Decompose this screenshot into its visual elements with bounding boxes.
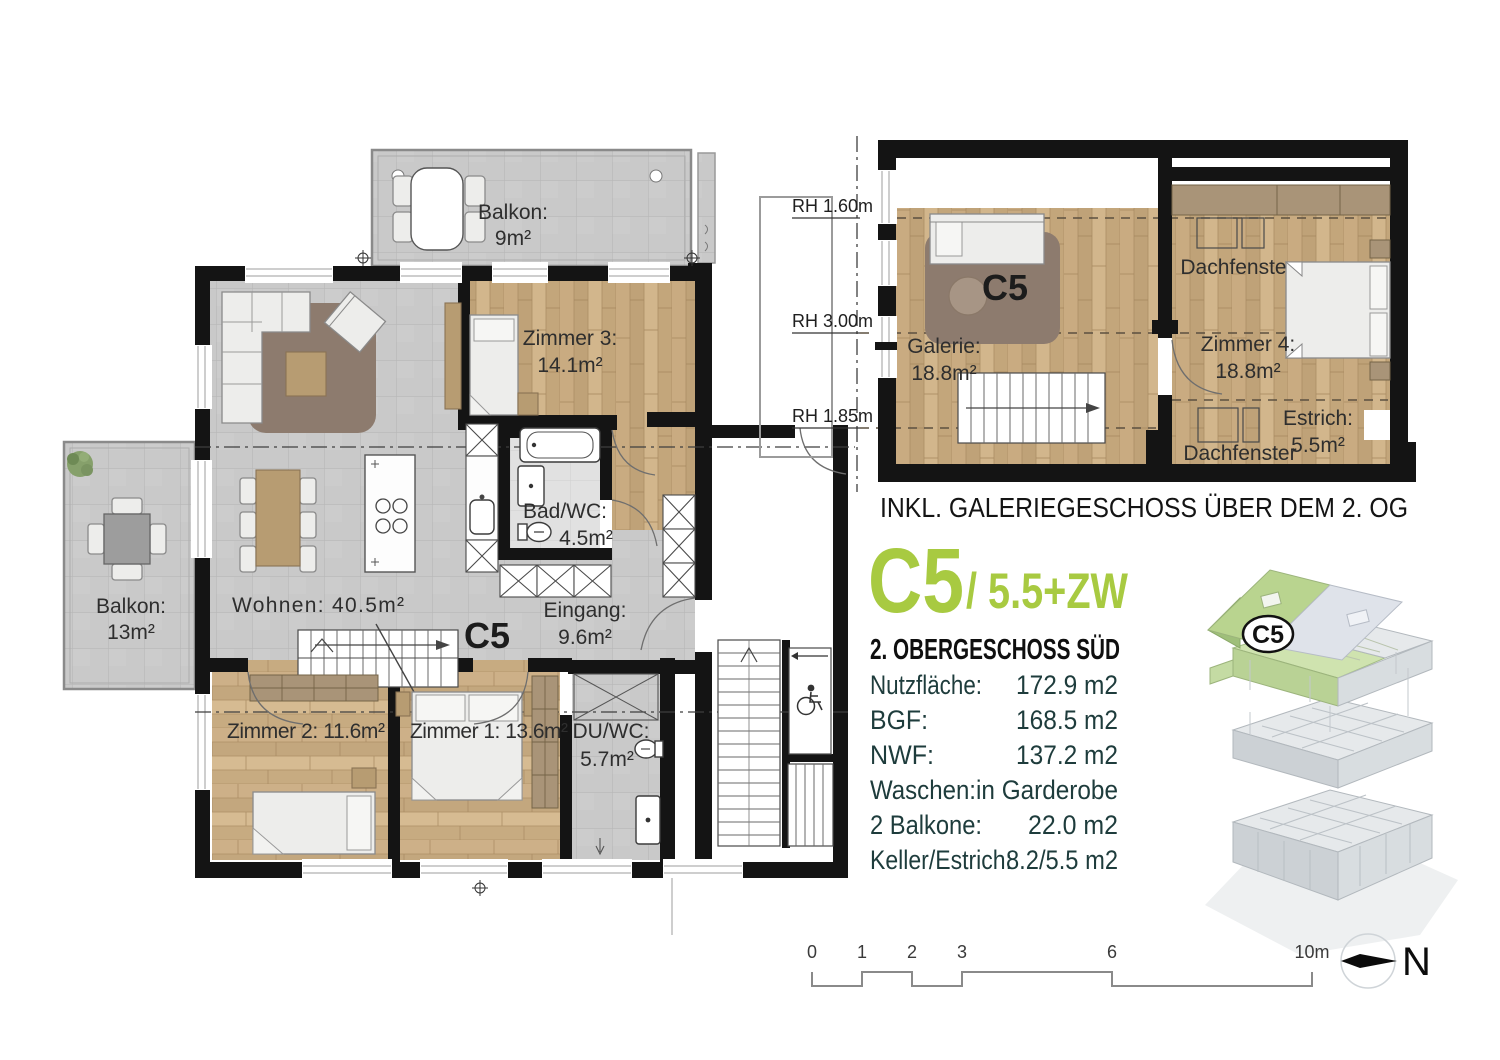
- window: [191, 694, 212, 790]
- label-balkon-left: Balkon:: [96, 595, 166, 618]
- label-duwc: DU/WC:: [573, 720, 650, 743]
- window: [875, 316, 897, 378]
- label-eingang: Eingang:: [544, 599, 627, 622]
- info-row-label: Waschen:: [870, 775, 976, 805]
- nightstand: [396, 692, 410, 716]
- scale-tick-2: 2: [907, 942, 917, 962]
- axon-badge-text: C5: [1252, 621, 1284, 649]
- info-row-value: 22.0 m2: [1028, 810, 1118, 840]
- label-bad-area: 4.5m²: [559, 527, 613, 550]
- washbasin: [636, 796, 660, 844]
- scale-tick-3: 3: [957, 942, 967, 962]
- dining-set: [240, 470, 316, 572]
- nightstand: [518, 393, 538, 415]
- building-axon: C5: [1205, 570, 1458, 955]
- axon-balcony: [1210, 660, 1233, 684]
- info-rows: Nutzfläche: 172.9 m2 BGF: 168.5 m2 NWF: …: [870, 670, 1118, 875]
- window: [663, 859, 743, 880]
- window: [875, 240, 897, 286]
- label-estrich-area: 5.5m²: [1291, 434, 1345, 457]
- scale-tick-10: 10m: [1294, 942, 1329, 962]
- label-rh-top: RH 1.60m: [792, 196, 873, 216]
- nightstand: [1370, 240, 1390, 258]
- label-rh-bottom: RH 1.85m: [792, 406, 873, 426]
- bathtub: [520, 428, 600, 462]
- wall-notch: [1364, 410, 1390, 440]
- balcony-top: Balkon: 9m²: [372, 150, 691, 266]
- nightstand: [1370, 362, 1390, 380]
- scale-tick-6: 6: [1107, 942, 1117, 962]
- label-zimmer4: Zimmer 4:: [1201, 333, 1296, 356]
- info-row-label: Nutzfläche:: [870, 670, 982, 700]
- elevator: [789, 648, 831, 754]
- north-label: N: [1402, 940, 1431, 984]
- nightstand: [352, 768, 376, 788]
- info-row-value: 137.2 m2: [1016, 740, 1118, 770]
- sideboard: [445, 303, 461, 409]
- label-balkon-top: Balkon:: [478, 201, 548, 224]
- label-dachfenster-bottom: Dachfenster: [1183, 442, 1296, 465]
- window: [245, 262, 333, 283]
- bed-double: [1286, 262, 1390, 358]
- window: [492, 262, 548, 283]
- scale-tick-0: 0: [807, 942, 817, 962]
- window: [542, 859, 632, 880]
- bed-single: [470, 315, 518, 415]
- label-bad: Bad/WC:: [523, 500, 607, 523]
- label-unit-gallery: C5: [982, 267, 1028, 308]
- label-balkon-left-area: 13m²: [107, 621, 155, 644]
- wardrobe-band: [1172, 185, 1390, 215]
- stair-flight-main: [718, 640, 780, 846]
- info-row-value: in Garderobe: [976, 775, 1118, 805]
- bed-double: [412, 692, 522, 800]
- scale-bar: 0 1 2 3 6 10m: [807, 942, 1330, 986]
- info-row-value: 172.9 m2: [1016, 670, 1118, 700]
- gallery-floor-plan: RH 1.60m RH 3.00m RH 1.85m: [760, 136, 1416, 523]
- survey-cross-icon: [472, 880, 488, 896]
- balcony-left: Balkon: 13m²: [64, 442, 195, 689]
- label-zimmer3-area: 14.1m²: [537, 354, 602, 377]
- window: [191, 345, 212, 409]
- info-row-value: 168.5 m2: [1016, 705, 1118, 735]
- info-row-label: 2 Balkone:: [870, 810, 982, 840]
- label-unit-main: C5: [464, 615, 510, 656]
- label-galerie: Galerie:: [907, 335, 981, 358]
- room-zimmer1: Zimmer 1: 13.6m²: [396, 672, 568, 808]
- info-row-value: 8.2/5.5 m2: [1006, 845, 1118, 875]
- window: [608, 262, 670, 283]
- label-zimmer3: Zimmer 3:: [523, 327, 618, 350]
- balcony-anchor-icon: [650, 170, 662, 182]
- axon-unit-badge: C5: [1243, 616, 1293, 652]
- balcony-door: [191, 460, 212, 558]
- window: [875, 170, 897, 224]
- label-dachfenster-top: Dachfenster: [1180, 256, 1293, 279]
- unit-logo: C5: [868, 530, 964, 632]
- label-estrich: Estrich:: [1283, 407, 1353, 430]
- tree-icon: [67, 451, 93, 477]
- floorplan-sheet: Balkon: 9m²: [0, 0, 1500, 1060]
- info-row-label: Keller/Estrich:: [870, 845, 1012, 875]
- label-galerie-area: 18.8m²: [911, 362, 976, 385]
- survey-cross-icon: [355, 250, 371, 266]
- axon-floor2: [1233, 698, 1432, 788]
- wardrobe-band: [250, 675, 378, 701]
- label-zimmer2: Zimmer 2: 11.6m²: [227, 720, 385, 743]
- stair-flight-lower: [788, 764, 833, 846]
- info-panel: C5 / 5.5+ZW 2. OBERGESCHOSS SÜD Nutzfläc…: [868, 530, 1129, 875]
- bed-galerie: [930, 214, 1044, 264]
- window: [302, 859, 392, 880]
- compass-needle-icon: [1341, 954, 1397, 968]
- coffee-table: [286, 352, 326, 396]
- stairs-galerie: [958, 373, 1105, 443]
- door-gap-zimmer4: [1158, 338, 1172, 395]
- gallery-caption: INKL. GALERIEGESCHOSS ÜBER DEM 2. OG: [880, 492, 1408, 523]
- kitchen-island: [365, 455, 415, 572]
- main-floor-plan: Balkon: 9m²: [64, 150, 855, 935]
- scale-tick-1: 1: [857, 942, 867, 962]
- label-balkon-top-area: 9m²: [495, 227, 531, 250]
- window: [420, 859, 508, 880]
- label-wohnen: Wohnen: 40.5m²: [232, 594, 404, 617]
- dining-table: [256, 470, 300, 566]
- label-eingang-area: 9.6m²: [558, 626, 612, 649]
- toilet: [518, 523, 551, 542]
- label-duwc-area: 5.7m²: [580, 748, 634, 771]
- panel-title: 2. OBERGESCHOSS SÜD: [870, 633, 1120, 666]
- window: [400, 262, 462, 283]
- label-rh-mid: RH 3.00m: [792, 311, 873, 331]
- bed-single: [253, 792, 375, 854]
- unit-variant: / 5.5+ZW: [966, 563, 1129, 619]
- info-row-label: NWF:: [870, 740, 934, 770]
- kitchen-counter: [466, 424, 498, 572]
- label-zimmer1: Zimmer 1: 13.6m²: [410, 720, 568, 743]
- label-zimmer4-area: 18.8m²: [1215, 360, 1280, 383]
- info-row-label: BGF:: [870, 705, 928, 735]
